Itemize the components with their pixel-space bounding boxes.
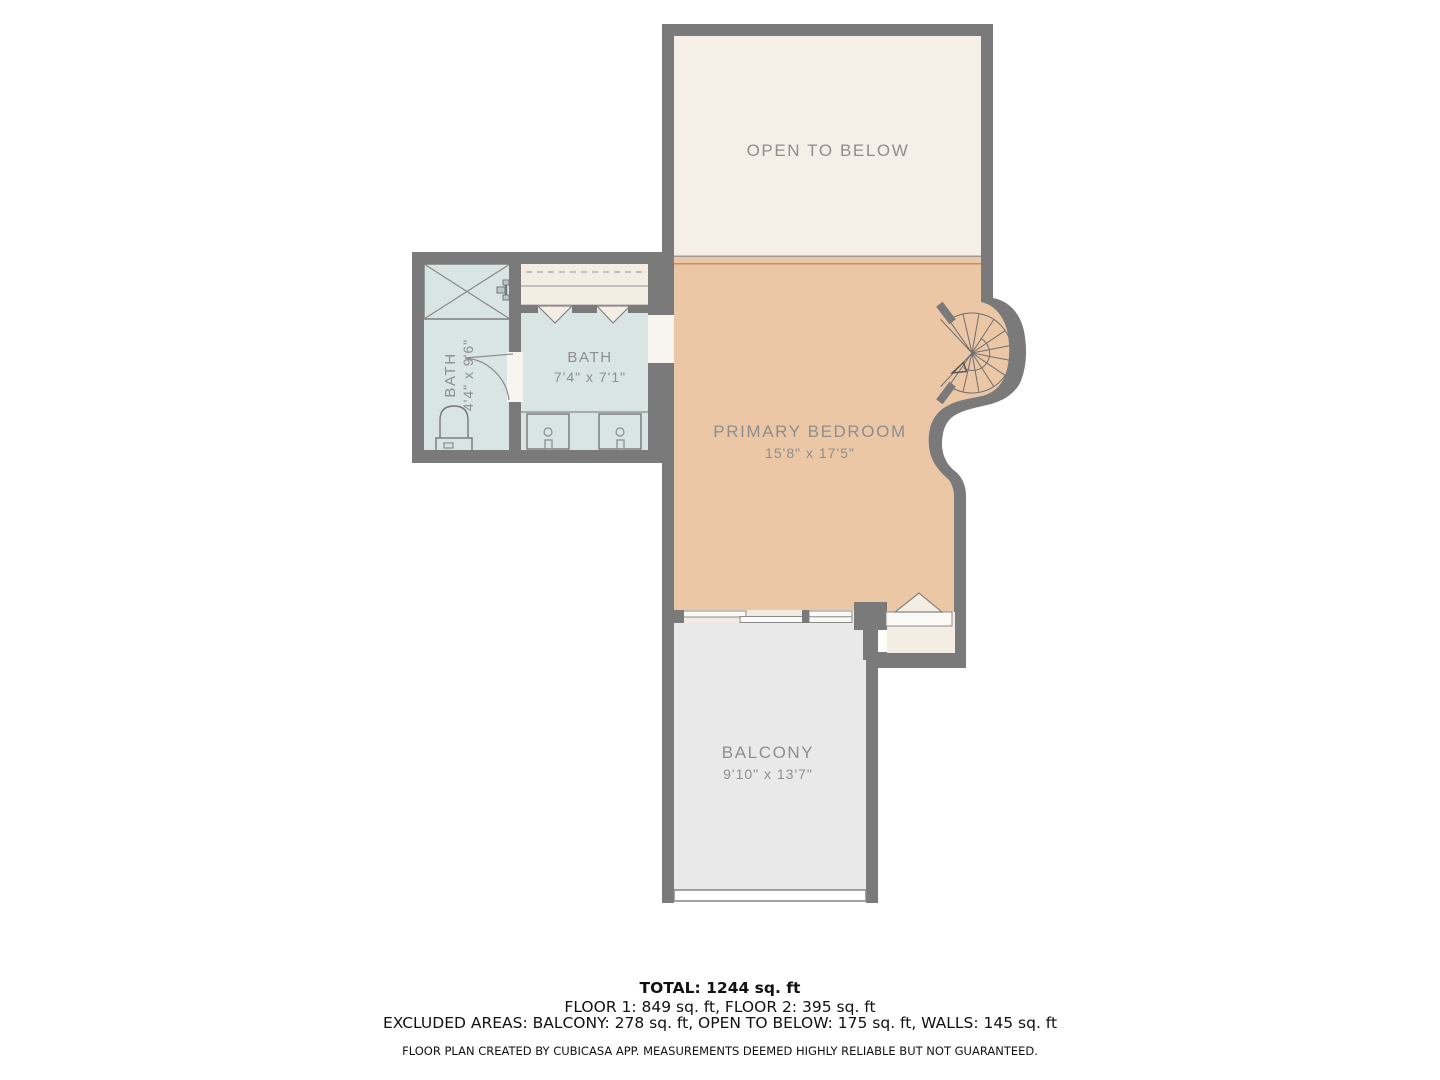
floor-plan-page: OPEN TO BELOW BATH 4'4" x 9'6" BATH 7'4"…: [0, 0, 1440, 1080]
wall-bath-bedroom-upper: [648, 264, 674, 315]
sink: [527, 414, 569, 449]
wall-closet-stub: [572, 305, 597, 313]
closet: [521, 258, 648, 306]
sink: [599, 414, 641, 449]
wall-right-lower: [954, 496, 966, 668]
total-area-text: TOTAL: 1244 sq. ft: [0, 979, 1440, 997]
wall-closet-stub: [521, 305, 538, 313]
excluded-areas-text: EXCLUDED AREAS: BALCONY: 278 sq. ft, OPE…: [0, 1014, 1440, 1032]
wall-otb-top: [662, 24, 993, 36]
wall-bedroom-bottom-left: [662, 610, 684, 623]
bedroom-bottom-openings: [681, 610, 854, 623]
wall-left: [662, 24, 674, 903]
alcove-threshold: [886, 612, 952, 626]
toilet: [436, 406, 472, 451]
wall-closet-stub: [628, 305, 648, 313]
bath-main-label: BATH: [567, 349, 612, 366]
primary-bedroom-dims: 15'8" x 17'5": [765, 445, 855, 461]
wall-window-divider: [802, 610, 809, 623]
bath-small-label: BATH: [442, 352, 459, 397]
disclaimer-text: FLOOR PLAN CREATED BY CUBICASA APP. MEAS…: [0, 1044, 1440, 1058]
room-fills: [424, 36, 1009, 891]
opening-bath-to-bedroom: [648, 315, 674, 363]
wall-right-upper: [981, 24, 993, 300]
wall-bath-divider-upper: [509, 264, 521, 352]
primary-bedroom-label: PRIMARY BEDROOM: [713, 422, 906, 441]
bath-small-dims: 4'4" x 9'6": [460, 339, 476, 411]
wall-balcony-right: [866, 602, 878, 903]
balcony-dims: 9'10" x 13'7": [723, 766, 813, 782]
floor-plan-svg: OPEN TO BELOW BATH 4'4" x 9'6" BATH 7'4"…: [0, 0, 1440, 1080]
wall-bath-divider-lower: [509, 402, 521, 450]
wall-alcove-bottom: [875, 652, 966, 668]
balcony-label: BALCONY: [722, 743, 814, 762]
opening-between-baths: [507, 352, 523, 402]
wall-bath-bottom: [412, 450, 674, 463]
balcony-railing: [674, 890, 866, 901]
open-to-below-label: OPEN TO BELOW: [747, 141, 910, 160]
bath-main-dims: 7'4" x 7'1": [554, 369, 626, 385]
wall-bath-top: [412, 252, 662, 264]
wall-bath-bedroom-lower: [648, 363, 674, 450]
window: [809, 611, 852, 623]
wall-bath-left: [412, 252, 424, 463]
